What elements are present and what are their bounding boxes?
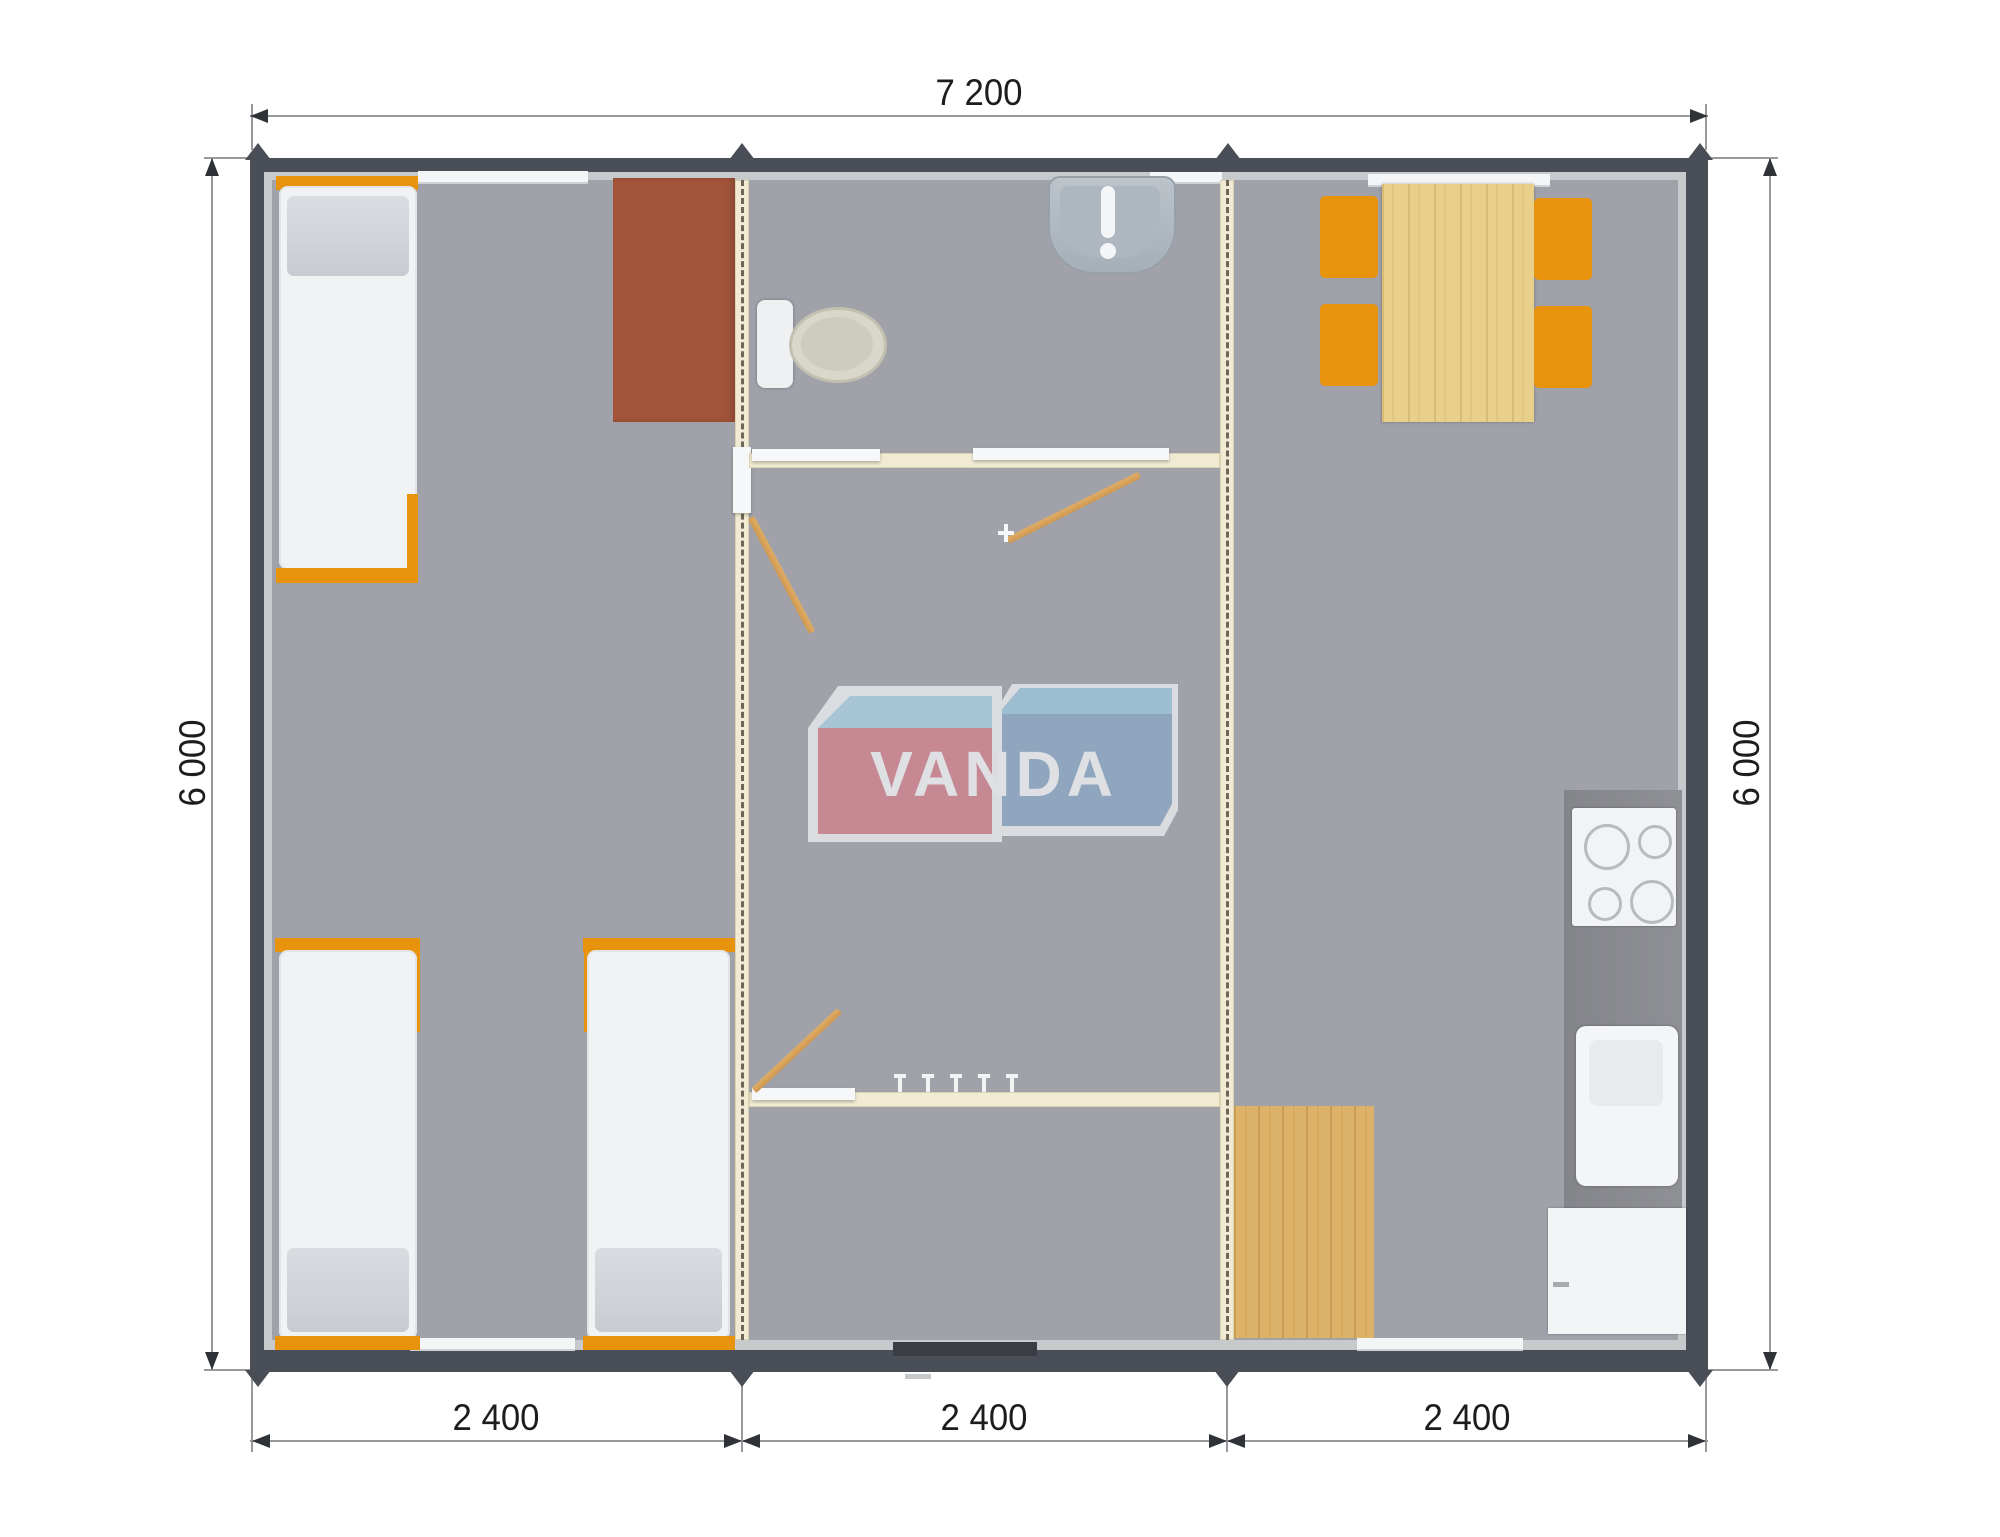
- window-strip-bottom-left: [410, 1338, 575, 1351]
- door-hinge-mark-2: [998, 531, 1014, 535]
- entrance-door: [893, 1342, 1037, 1356]
- dimension-label-module-2: 2 400: [909, 1397, 1059, 1439]
- wood-floor-mat: [1234, 1106, 1374, 1338]
- bed-2-pillow: [287, 1248, 409, 1332]
- toilet-tank: [757, 300, 793, 388]
- bed-3-pillow: [595, 1248, 722, 1332]
- entrance-door-handle: [905, 1374, 931, 1379]
- bed-1-side-post: [407, 494, 418, 570]
- burner-2: [1638, 825, 1672, 859]
- module-divider-left: [735, 180, 749, 1340]
- cooktop: [1572, 808, 1676, 926]
- dimension-label-left: 6 000: [171, 707, 215, 820]
- bed-1-pillow: [287, 196, 409, 276]
- coat-hook-3: [954, 1077, 958, 1092]
- kitchen-sink-bowl: [1589, 1040, 1663, 1106]
- floor-plan-canvas: 7 200 6 000 6 000 2 400 2 400 2 400: [0, 0, 2000, 1537]
- dining-table: [1382, 184, 1534, 422]
- coat-hook-2: [926, 1077, 930, 1092]
- logo-text: VANDA: [870, 738, 1118, 810]
- bed-1-foot-rail: [276, 568, 418, 583]
- vanda-logo-watermark: VANDA: [808, 684, 1180, 852]
- hall-sliding-panel: [752, 1088, 855, 1100]
- window-strip-top-left: [418, 171, 588, 184]
- window-strip-bottom-right: [1357, 1338, 1523, 1351]
- chair-2: [1320, 304, 1378, 386]
- bed-3-foot-rail: [583, 1336, 735, 1350]
- chair-1: [1320, 196, 1378, 278]
- dimension-label-module-3: 2 400: [1392, 1397, 1542, 1439]
- divider-joint-line: [741, 180, 744, 1340]
- dimension-label-module-1: 2 400: [421, 1397, 571, 1439]
- burner-1: [1584, 824, 1630, 870]
- dimension-label-top: 7 200: [904, 72, 1054, 114]
- module-divider-right: [1220, 180, 1234, 1340]
- coat-hook-5: [1010, 1077, 1014, 1092]
- burner-3: [1588, 887, 1622, 921]
- dimension-label-right: 6 000: [1725, 707, 1769, 820]
- faucet-knob: [1100, 243, 1116, 259]
- desk: [613, 178, 735, 422]
- divider-joint-line: [1226, 180, 1229, 1340]
- bed-2-foot-rail: [275, 1336, 420, 1350]
- bathroom-sliding-panel-right: [973, 448, 1169, 460]
- toilet-seat: [801, 317, 873, 371]
- chair-4: [1534, 306, 1592, 388]
- faucet-icon: [1101, 186, 1115, 238]
- coat-hook-1: [898, 1077, 902, 1092]
- chair-3: [1534, 198, 1592, 280]
- coat-hook-4: [982, 1077, 986, 1092]
- logo-blue-top: [998, 688, 1172, 714]
- fridge-handle: [1553, 1282, 1569, 1287]
- coat-hooks: [898, 1077, 1028, 1093]
- burner-4: [1630, 880, 1674, 924]
- bathroom-sliding-panel-left: [752, 449, 880, 461]
- fridge: [1548, 1208, 1686, 1334]
